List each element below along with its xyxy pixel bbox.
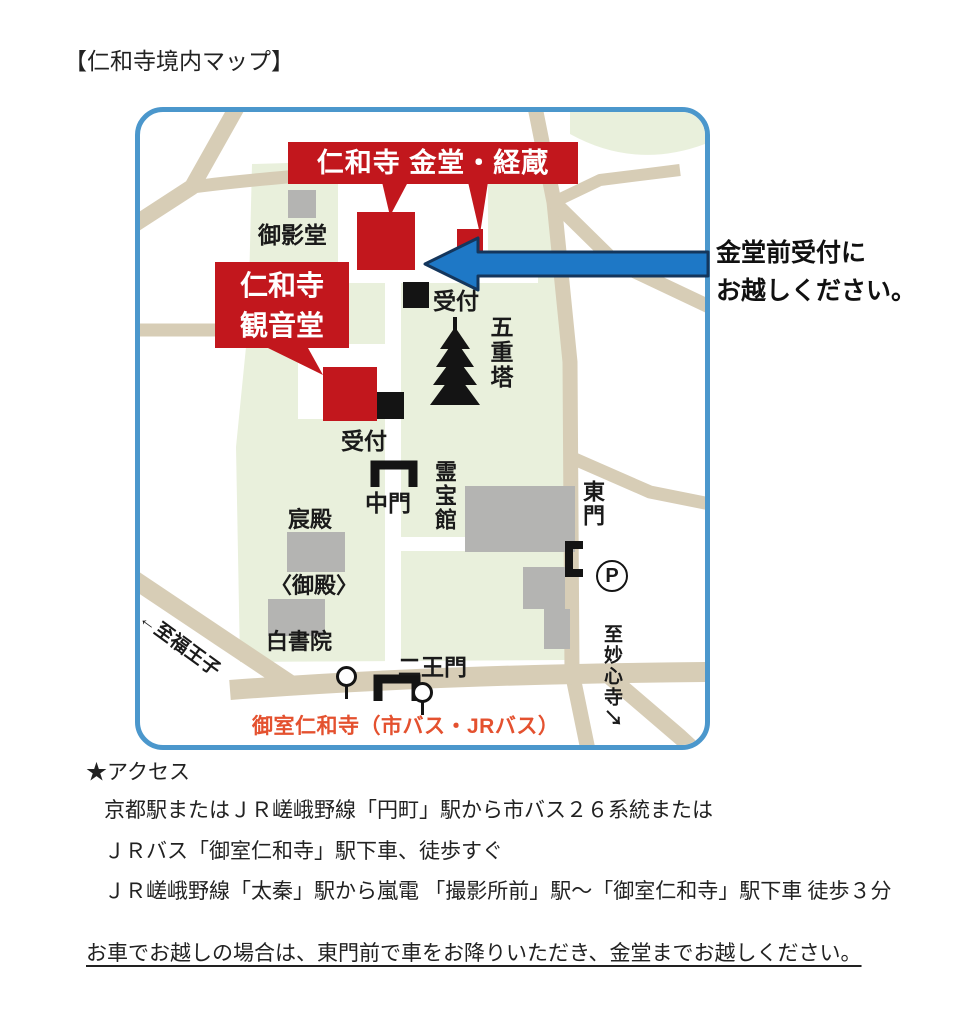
bus-stop-stem	[345, 685, 348, 699]
reception-kannondo-building	[377, 392, 404, 419]
reception-kannondo-label: 受付	[341, 422, 387, 456]
callout-kannondo: 仁和寺 観音堂	[215, 262, 349, 348]
tomon-label: 東門	[576, 480, 608, 528]
access-line-2: ＪＲバス「御室仁和寺」駅下車、徒歩すぐ	[104, 835, 503, 865]
chumon-label: 中門	[365, 484, 411, 518]
parking-letter: P	[605, 565, 618, 588]
shinden-label: 宸殿	[288, 502, 332, 534]
hakushoin-label: 白書院	[266, 624, 332, 656]
kannondo-building	[323, 367, 377, 421]
mieido-label: 御影堂	[258, 216, 327, 250]
arrow-left-icon	[420, 232, 712, 296]
callout-kondo-kyozo: 仁和寺 金堂・経蔵	[288, 142, 578, 184]
car-access-note: お車でお越しの場合は、東門前で車をお降りいただき、金堂までお越しください。	[86, 937, 862, 967]
niomon-label: 二王門	[398, 648, 467, 682]
bus-stop-icon	[336, 666, 356, 700]
page-title: 【仁和寺境内マップ】	[64, 42, 294, 76]
reihokan-label: 霊宝館	[428, 460, 460, 532]
goten-building-north	[287, 532, 345, 572]
kondo-building	[357, 212, 415, 270]
bus-stop-head	[412, 682, 433, 703]
access-heading: ★アクセス	[86, 756, 190, 786]
mieido-building	[288, 190, 316, 218]
callout-kannondo-line1: 仁和寺	[215, 266, 349, 306]
callout-kannondo-line2: 観音堂	[215, 306, 349, 346]
east-gate-building	[523, 567, 565, 609]
tomon-gate-icon	[561, 540, 587, 578]
reihokan-building	[465, 486, 575, 552]
to-myoshinji-label: 至妙心寺↘	[598, 624, 625, 729]
pagoda-label: 五重塔	[483, 315, 517, 390]
arrow-annotation: 金堂前受付に お越しください。	[716, 234, 916, 310]
arrow-annotation-line1: 金堂前受付に	[716, 234, 916, 272]
page: 【仁和寺境内マップ】	[0, 0, 966, 1024]
east-gate-building-2	[544, 609, 570, 649]
parking-icon: P	[596, 560, 628, 592]
pagoda-icon	[428, 315, 482, 407]
access-line-1: 京都駅またはＪＲ嵯峨野線「円町」駅から市バス２６系統または	[104, 794, 713, 824]
bus-stop-name-label: 御室仁和寺（市バス・JRバス）	[252, 710, 559, 740]
arrow-annotation-line2: お越しください。	[716, 272, 916, 310]
access-line-3: ＪＲ嵯峨野線「太秦」駅から嵐電 「撮影所前」駅～「御室仁和寺」駅下車 徒歩３分	[104, 875, 892, 905]
bus-stop-head	[336, 666, 357, 687]
goten-label: 〈御殿〉	[270, 568, 358, 600]
temple-grounds-map: P 御影堂 受付 受付 五重塔 中門 霊宝館 宸殿 〈御殿〉 白書院 二王門 東…	[135, 107, 710, 750]
